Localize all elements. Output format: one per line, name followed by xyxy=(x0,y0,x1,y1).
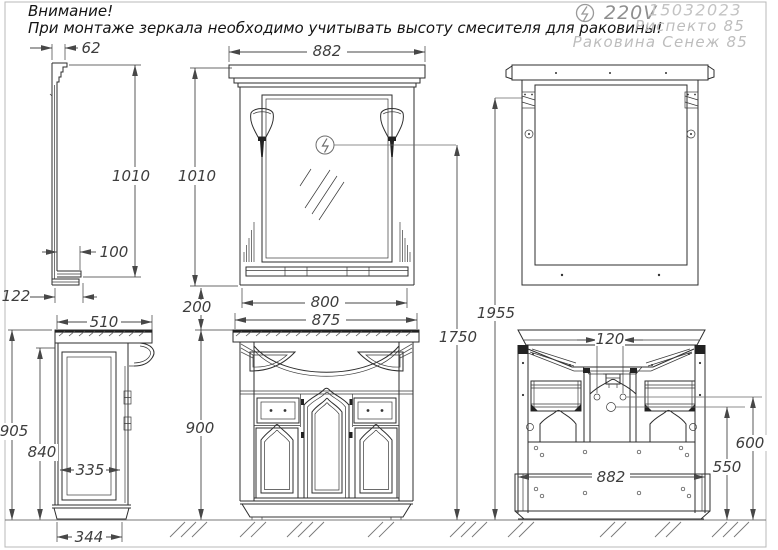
sheet-border xyxy=(5,2,766,547)
drawer-left xyxy=(257,398,299,423)
dim-total-height: 1750 xyxy=(439,328,477,346)
dim-mirror-glass-width: 800 xyxy=(311,293,340,311)
hinge-marks xyxy=(301,399,353,438)
mount-bracket-left xyxy=(522,92,535,108)
dim-drain-offset: 120 xyxy=(596,330,625,348)
dim-side-panel-height: 840 xyxy=(28,443,57,461)
dim-base-depth: 344 xyxy=(75,528,104,546)
drawer-box-right xyxy=(645,381,695,411)
dim-mirror-height: 1010 xyxy=(178,167,216,185)
dim-outlet-height: 600 xyxy=(736,434,765,452)
drain-fitting xyxy=(603,374,623,388)
cabinet-front-view xyxy=(233,330,419,520)
mirror-rear-view xyxy=(506,65,714,285)
drawer-right xyxy=(354,398,396,423)
dim-countertop-width: 875 xyxy=(312,311,341,329)
door-right xyxy=(355,425,397,498)
drawer-box-left xyxy=(531,381,581,411)
electric-symbol-icon xyxy=(577,5,594,22)
dim-drain-height: 550 xyxy=(713,458,742,476)
door-left xyxy=(256,425,298,498)
electric-symbol-icon xyxy=(316,136,334,154)
dim-mirror-height-side: 1010 xyxy=(112,167,150,185)
dim-mirror-crown-depth: 62 xyxy=(81,39,100,57)
dim-mirror-depth: 122 xyxy=(2,287,31,305)
dim-cabinet-depth: 510 xyxy=(90,313,119,331)
floor-line xyxy=(5,520,766,537)
dim-cabinet-width: 882 xyxy=(597,468,626,486)
warning-line-1: Внимание! xyxy=(28,2,113,20)
screw-icon xyxy=(525,130,695,138)
dim-cabinet-side-height: 905 xyxy=(0,422,28,440)
dim-side-panel-width: 335 xyxy=(76,461,105,479)
dim-mirror-width: 882 xyxy=(313,42,342,60)
technical-drawing: Внимание! При монтаже зеркала необходимо… xyxy=(0,0,778,550)
dim-cabinet-height: 900 xyxy=(186,419,215,437)
warning-text: Внимание! При монтаже зеркала необходимо… xyxy=(28,2,663,37)
cabinet-rear-view xyxy=(515,330,762,520)
dim-mirror-gap: 200 xyxy=(183,298,212,316)
door-center xyxy=(304,388,349,498)
sink-model-label: Раковина Сенеж 85 xyxy=(573,33,748,51)
dim-mirror-mount-height: 1955 xyxy=(477,304,515,322)
warning-line-2: При монтаже зеркала необходимо учитывать… xyxy=(28,19,663,37)
dim-mirror-shelf-depth: 100 xyxy=(100,243,129,261)
sink-front-profile xyxy=(129,343,154,366)
cabinet-side-view xyxy=(8,315,154,542)
